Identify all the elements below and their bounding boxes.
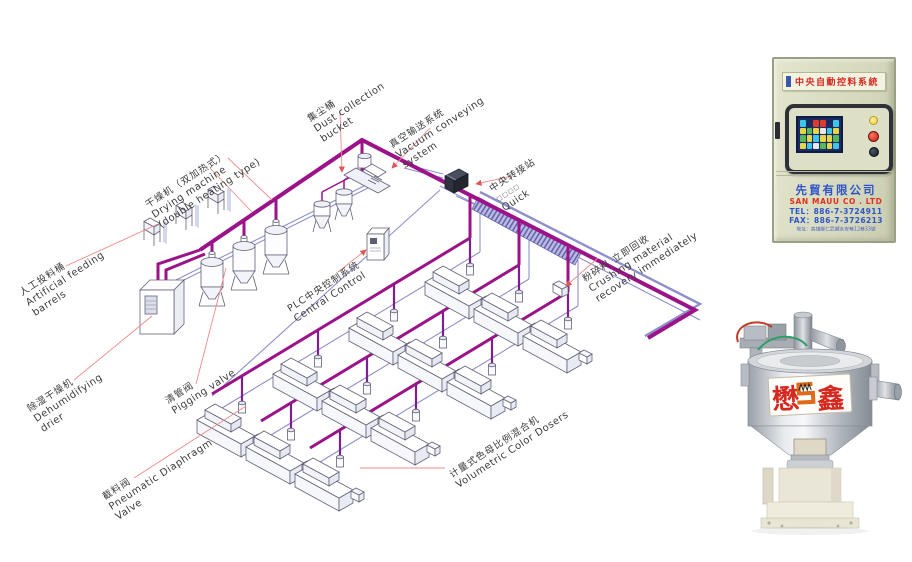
screen-cell [827, 135, 833, 142]
screen-cell [827, 120, 833, 127]
dust-collector-cyclone [313, 201, 331, 232]
screen-cell [827, 128, 833, 135]
hopper-dryer [263, 220, 289, 275]
label-cn: 计量式色母比例混合机 [447, 413, 542, 480]
screen-cell [813, 135, 819, 142]
diagram-labels: 人工投料桶 Artificial feeding barrels 干燥机（双加热… [17, 70, 700, 523]
plc-cabinet [367, 228, 389, 260]
screen-cell [833, 128, 839, 135]
screen-cell [813, 143, 819, 150]
label-dehumidifying-drier: 除湿干燥机 Dehumidifying drier [25, 361, 111, 434]
screen-cell [813, 128, 819, 135]
logo-char-right: 鑫 [816, 382, 845, 415]
cone-discharge [751, 426, 869, 469]
panel-cabinet: 中央自動控料系統 先貿有限公司 SAN MAUU CO . LTD TEL：88… [772, 57, 896, 243]
screen-cell [807, 135, 813, 142]
cabinet-seam [776, 175, 894, 176]
label-crushing-recovery: 粉碎料 立即回收 Crushing material recovery imme… [580, 209, 700, 304]
dehumidifier-cabinet [140, 280, 184, 334]
injection-machine [447, 363, 516, 419]
screen-cell [833, 135, 839, 142]
screen-cell [807, 128, 813, 135]
red-pushbutton [868, 131, 879, 142]
screen-cell [833, 143, 839, 150]
panel-screen-grid [796, 116, 843, 153]
screen-cell [800, 128, 806, 135]
central-conveying-diagram: 人工投料桶 Artificial feeding barrels 干燥机（双加热… [0, 0, 768, 562]
outlet-pipe [869, 377, 902, 400]
door-handle [775, 122, 780, 139]
screen-cell [833, 120, 839, 127]
logo-char-left: 懋 [771, 384, 800, 416]
label-en: Volumetric Color Dosers [454, 409, 571, 490]
indicator-lamp [869, 116, 878, 125]
label-diaphragm-valve: 截料阀 Pneumatic Diaphragm Valve [100, 427, 221, 523]
screen-cell [827, 143, 833, 150]
vacuum-hopper-photo: 懋 鑫 [710, 300, 910, 540]
screen-cell [820, 143, 826, 150]
panel-door [785, 104, 893, 174]
label-plc-control: PLC中央控制系统 Central Control [285, 259, 368, 325]
panel-title-plate: 中央自動控料系統 [782, 72, 886, 91]
crusher-recovery-band [472, 197, 581, 265]
screen-cell [800, 143, 806, 150]
base-stand [752, 468, 868, 535]
label-drying-machine: 干燥机（双加热式） Drying machine (double heating… [143, 136, 262, 231]
screen-cell [813, 120, 819, 127]
screenshot-canvas: 人工投料桶 Artificial feeding barrels 干燥机（双加热… [0, 0, 912, 562]
label-artificial-feeding: 人工投料桶 Artificial feeding barrels [17, 239, 113, 319]
company-name-cn: 先貿有限公司 [774, 182, 898, 198]
control-panel-photo: 中央自動控料系統 先貿有限公司 SAN MAUU CO . LTD TEL：88… [772, 57, 896, 243]
dust-collector-cyclone [335, 189, 353, 220]
company-name-en: SAN MAUU CO . LTD [774, 197, 898, 206]
injection-machine [371, 409, 440, 465]
screen-cell [820, 135, 826, 142]
power-pushbutton [869, 147, 879, 157]
logo-plate: 懋 鑫 [768, 374, 852, 418]
injection-machine [295, 455, 364, 511]
central-transfer-station [445, 169, 468, 193]
equipment [140, 153, 592, 511]
label-vacuum-conveying: 真空输送系统 Vacuum conveying system [387, 85, 493, 171]
label-en: Pneumatic Diaphragm [107, 437, 215, 512]
screen-cell [820, 128, 826, 135]
screen-cell [807, 120, 813, 127]
cabinet-seam [776, 171, 894, 172]
brand-mark-icon [786, 76, 791, 87]
label-color-doser: 计量式色母比例混合机 Volumetric Color Dosers [447, 399, 571, 491]
grinder-unit [553, 281, 568, 297]
screen-cell [800, 135, 806, 142]
label-transfer-station: 中央转接站 □□□□ Quick [487, 156, 550, 214]
company-address: 地址：高雄縣仁武鄉永安巷12巷33號 [786, 225, 885, 232]
hopper-dryer [231, 236, 257, 291]
vacuum-pump-station [344, 153, 390, 193]
screen-cell [800, 120, 806, 127]
panel-title: 中央自動控料系統 [795, 75, 879, 88]
hopper-dryer [199, 252, 225, 307]
screen-cell [820, 120, 826, 127]
injection-machine [523, 317, 592, 373]
screen-cell [807, 143, 813, 150]
label-dust-collection: 集尘桶 Dust collection bucket [305, 70, 393, 145]
